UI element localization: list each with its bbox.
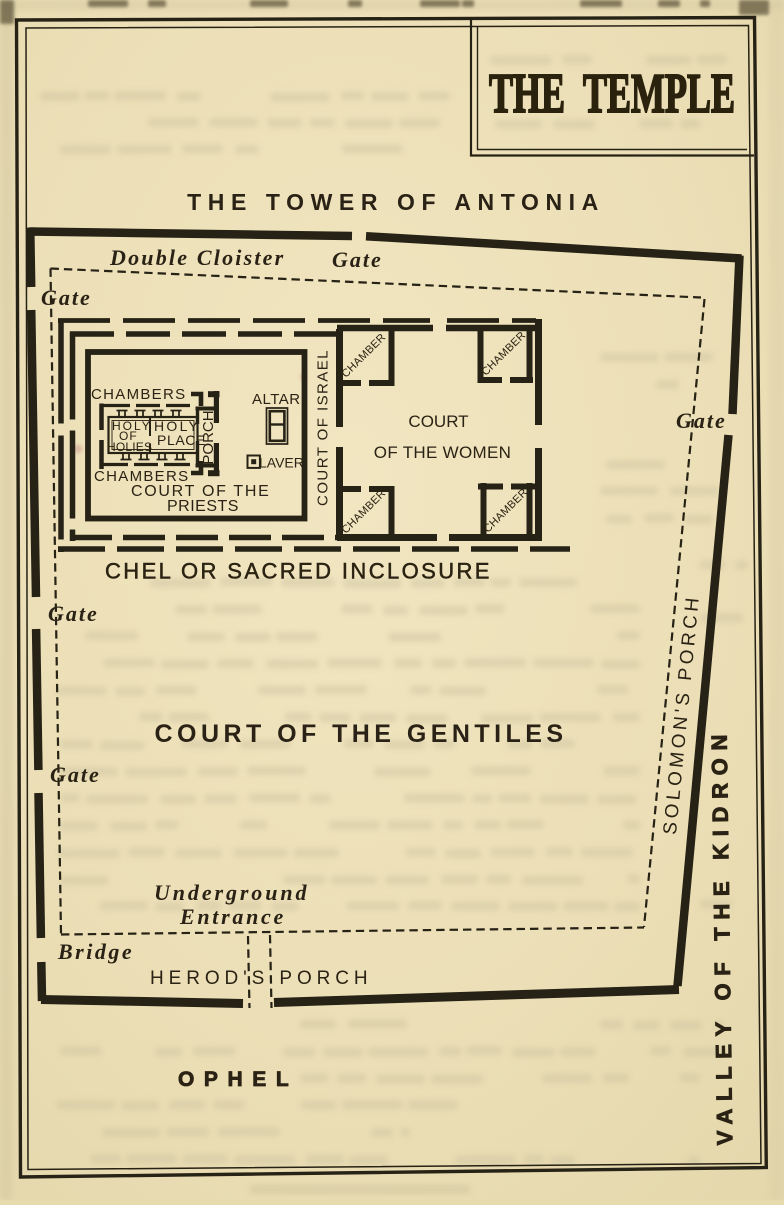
svg-text:COURT OF THE GENTILES: COURT OF THE GENTILES	[155, 720, 568, 748]
svg-text:ALTAR: ALTAR	[252, 391, 301, 408]
svg-text:COURT: COURT	[408, 412, 468, 431]
svg-text:Gate: Gate	[48, 601, 99, 626]
svg-text:HOLIES: HOLIES	[107, 440, 152, 454]
svg-text:COURT OF ISRAEL: COURT OF ISRAEL	[315, 349, 332, 506]
svg-text:Double Cloister: Double Cloister	[109, 245, 285, 270]
svg-text:Gate: Gate	[41, 285, 92, 310]
svg-text:Bridge: Bridge	[57, 939, 134, 964]
svg-text:OPHEL: OPHEL	[178, 1068, 298, 1091]
svg-text:CHEL OR SACRED INCLOSURE: CHEL OR SACRED INCLOSURE	[105, 559, 492, 584]
svg-text:CHAMBERS: CHAMBERS	[91, 386, 186, 403]
svg-text:Gate: Gate	[50, 762, 101, 787]
svg-text:PRIESTS: PRIESTS	[167, 498, 239, 515]
svg-text:Entrance: Entrance	[179, 904, 286, 929]
svg-text:Gate: Gate	[676, 408, 727, 433]
svg-text:HEROD'S PORCH: HEROD'S PORCH	[150, 968, 373, 989]
svg-text:Gate: Gate	[332, 247, 383, 272]
svg-text:LAVER: LAVER	[259, 455, 304, 471]
svg-text:THE TOWER OF ANTONIA: THE TOWER OF ANTONIA	[187, 189, 605, 215]
svg-text:OF THE WOMEN: OF THE WOMEN	[374, 443, 511, 462]
svg-text:Underground: Underground	[154, 880, 309, 905]
svg-text:THE TEMPLE: THE TEMPLE	[489, 63, 735, 125]
